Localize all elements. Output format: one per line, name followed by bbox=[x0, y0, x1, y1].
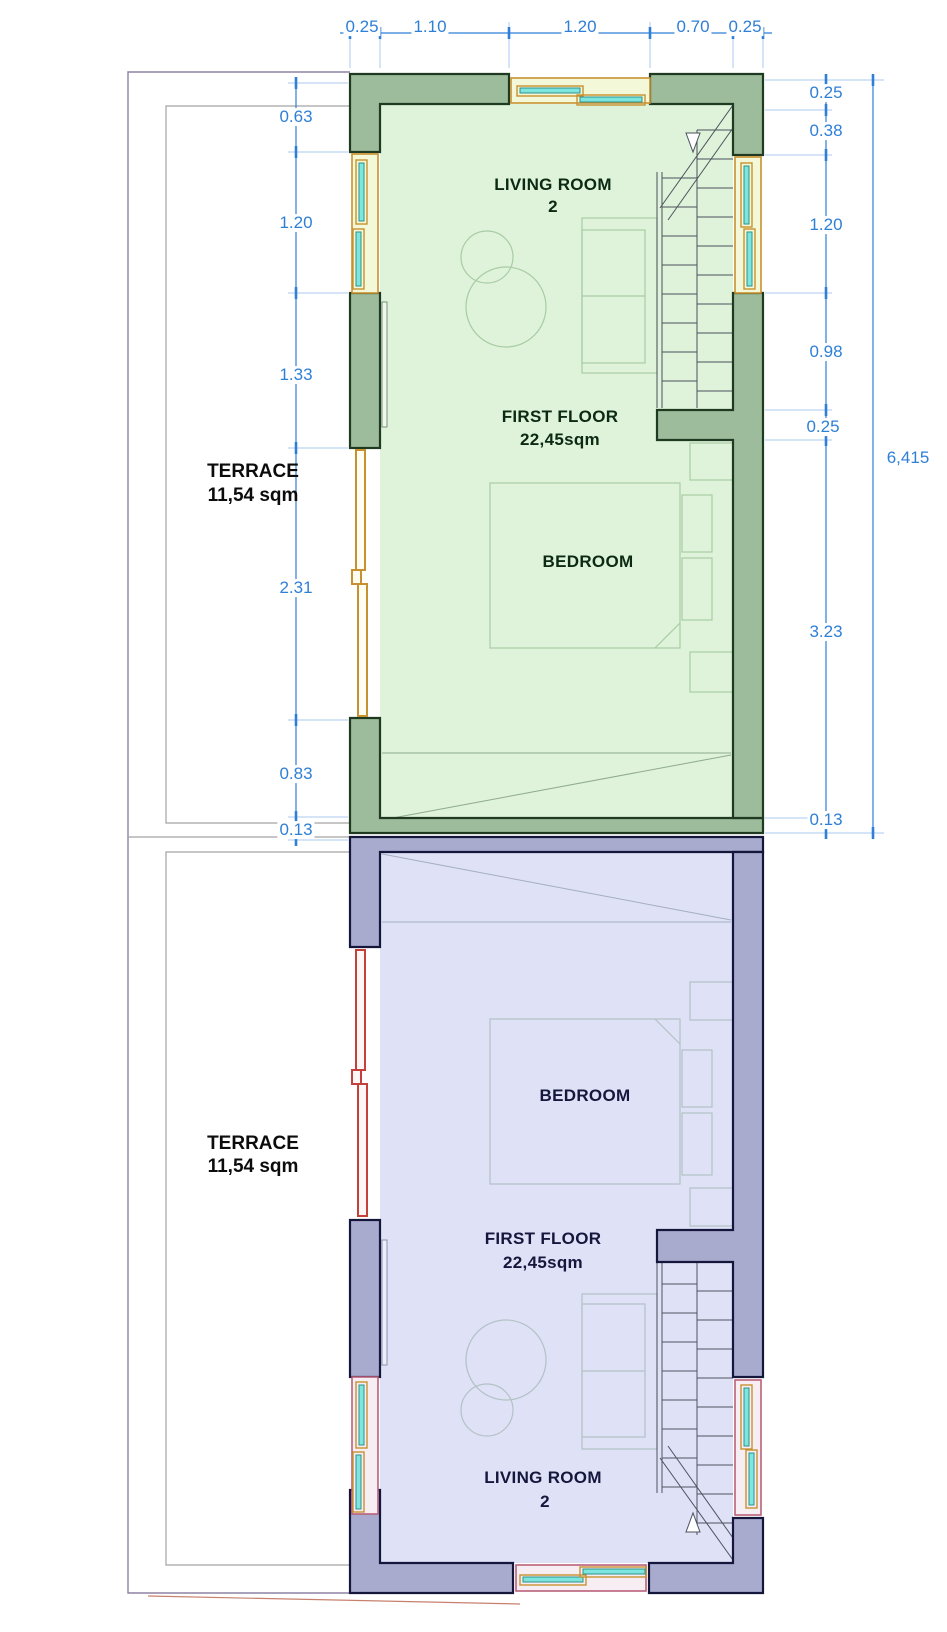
dim-top-3: 1.20 bbox=[561, 18, 598, 36]
dim-right-5: 0.25 bbox=[804, 418, 841, 436]
upper-living-room-number: 2 bbox=[548, 198, 558, 216]
dim-left-6: 0.13 bbox=[277, 821, 314, 839]
ground-line bbox=[148, 1596, 520, 1604]
dim-top-1: 0.25 bbox=[343, 18, 380, 36]
dim-left-1: 0.63 bbox=[277, 108, 314, 126]
window-left-upper bbox=[352, 154, 378, 293]
dim-left-2: 1.20 bbox=[277, 214, 314, 232]
dim-top-4: 0.70 bbox=[674, 18, 711, 36]
dim-right-1: 0.25 bbox=[807, 84, 844, 102]
lower-bedroom-label: BEDROOM bbox=[540, 1087, 631, 1105]
lower-terrace-label: TERRACE bbox=[207, 1134, 299, 1154]
door-leaf-lower bbox=[382, 1240, 387, 1365]
upper-terrace-area: 11,54 sqm bbox=[208, 486, 299, 506]
window-bottom-lower bbox=[516, 1565, 646, 1591]
dim-right-7: 0.13 bbox=[807, 811, 844, 829]
window-right-lower bbox=[735, 1380, 761, 1515]
dim-right-6: 3.23 bbox=[807, 623, 844, 641]
dim-left-5: 0.83 bbox=[277, 765, 314, 783]
lower-living-room-number: 2 bbox=[540, 1493, 550, 1511]
lower-unit-floor bbox=[380, 852, 733, 1563]
lower-terrace-area: 11,54 sqm bbox=[208, 1157, 299, 1177]
lower-living-room-label: LIVING ROOM bbox=[484, 1469, 602, 1487]
window-right-upper bbox=[735, 157, 761, 293]
floor-plan-page: 0.25 1.10 1.20 0.70 0.25 0.63 1.20 1.33 … bbox=[0, 0, 947, 1632]
window-left-lower bbox=[352, 1377, 378, 1514]
dim-right-3: 1.20 bbox=[807, 216, 844, 234]
lower-floor-label: FIRST FLOOR bbox=[485, 1230, 602, 1248]
dim-overall-height: 6,415 bbox=[885, 449, 932, 467]
dim-left-4: 2.31 bbox=[277, 579, 314, 597]
dim-left-3: 1.33 bbox=[277, 366, 314, 384]
dim-right-4: 0.98 bbox=[807, 343, 844, 361]
dim-top-5: 0.25 bbox=[726, 18, 763, 36]
door-leaf-upper bbox=[382, 302, 387, 427]
upper-living-room-label: LIVING ROOM bbox=[494, 176, 612, 194]
upper-terrace-label: TERRACE bbox=[207, 462, 299, 482]
upper-floor-label: FIRST FLOOR bbox=[502, 408, 619, 426]
floor-plan-drawing bbox=[0, 0, 947, 1632]
upper-bedroom-label: BEDROOM bbox=[543, 553, 634, 571]
upper-floor-area: 22,45sqm bbox=[520, 431, 600, 449]
sliding-door-upper bbox=[352, 450, 367, 716]
window-top-upper bbox=[511, 78, 650, 105]
sliding-door-lower bbox=[352, 950, 367, 1216]
dim-right-2: 0.38 bbox=[807, 122, 844, 140]
dim-top-2: 1.10 bbox=[411, 18, 448, 36]
lower-floor-area: 22,45sqm bbox=[503, 1254, 583, 1272]
